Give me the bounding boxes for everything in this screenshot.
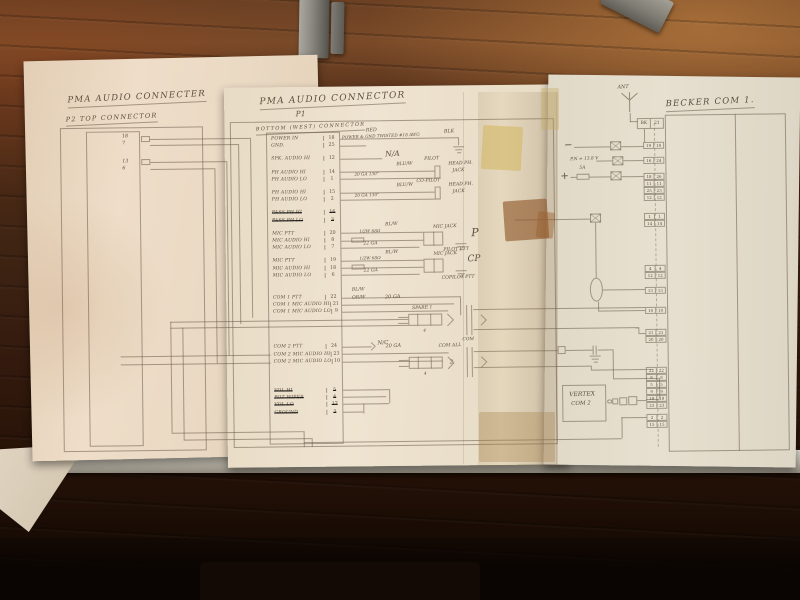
becker-unit-outline: [665, 113, 790, 451]
wire: [389, 389, 390, 403]
ground-icon: [590, 356, 601, 363]
pencil-schematic: PMA AUDIO CONNECTER P2 TOP CONNECTOR 187…: [0, 0, 800, 600]
pin-b: 12: [654, 195, 664, 200]
pin-pair: 1624: [643, 157, 664, 164]
pin-b: 26: [653, 174, 663, 179]
pin-b: 13: [655, 288, 665, 293]
pin-pair: 1515: [646, 421, 667, 428]
vertex-model: COM 2: [571, 401, 591, 407]
p1-title: PMA AUDIO CONNECTOR: [259, 91, 406, 110]
pin-pair: 2020: [645, 336, 666, 343]
inline-connector-icon: [610, 171, 621, 180]
pin-a: 10: [646, 308, 655, 313]
pin-b: 24: [653, 158, 663, 163]
wire: [637, 400, 646, 401]
tape-top-piece: [541, 88, 559, 130]
plug2-number: 2: [450, 360, 454, 366]
mic2-color: BL/W: [385, 251, 398, 256]
wire: [644, 129, 645, 142]
wire: [598, 310, 645, 312]
wire: [595, 223, 597, 278]
com1-tag: COM: [462, 338, 474, 343]
pin-a: 14: [645, 221, 654, 226]
p2-pin: 6: [122, 166, 128, 173]
pin-a: 4: [646, 266, 655, 271]
wire: [591, 369, 653, 371]
supply-wire: [622, 176, 644, 177]
ant-label: ANT: [617, 85, 629, 90]
trs-plug-seg: [612, 398, 618, 404]
pin-pair: 1313: [645, 287, 666, 294]
p2-pin: 7: [122, 141, 128, 148]
wire: [621, 417, 646, 418]
inline-connector-icon: [610, 141, 621, 150]
pin-a: 13: [646, 288, 655, 293]
ph1-position: PILOT: [424, 157, 439, 162]
com1-jack-label: SPARE 1: [412, 306, 432, 311]
mic1-gauge: 22 GA: [363, 242, 377, 247]
plug2-sleeve-wire: [399, 366, 409, 367]
wire: [603, 289, 645, 291]
mic2-resistor: 1/2W 68Ω: [359, 256, 380, 261]
plug1-sleeve-wire: [398, 323, 408, 324]
pin-a: 18: [644, 174, 653, 179]
mic2-dest: MIC JACK: [433, 252, 457, 257]
becker-title: BECKER COM 1.: [665, 96, 755, 112]
minus-terminal: −: [564, 141, 573, 151]
plug1-pin-count: 4: [423, 329, 426, 333]
pin-b: 23: [654, 188, 664, 193]
becker-pin-pairs: 1919 1624 1826 1111 2523 1212 11 1414 44…: [643, 142, 667, 428]
pin-b: 21: [655, 330, 665, 335]
pin-pair: 1212: [645, 272, 666, 279]
pin-b: 5: [656, 382, 666, 387]
wire: [363, 403, 364, 413]
pin-b: 23: [656, 403, 666, 408]
pin-b: 19: [653, 143, 663, 148]
pin-b: 12: [655, 273, 665, 278]
supply-wire: [621, 146, 643, 147]
com2-jack-label: COM ALL: [438, 344, 461, 349]
pin-b: 10: [655, 308, 665, 313]
ph2-dest-2: JACK: [453, 190, 465, 195]
com1-gauge: 20 GA: [385, 295, 401, 301]
gnd-drop: [458, 137, 459, 145]
inline-connector-icon: [612, 156, 623, 165]
pin-a: 25: [645, 188, 654, 193]
brown-tape-piece-small: [536, 211, 556, 239]
ground-icon: [453, 146, 464, 153]
p2-title: PMA AUDIO CONNECTER: [67, 90, 206, 108]
pin-b: 1: [654, 214, 664, 219]
pin-pair: 1212: [644, 194, 665, 201]
pin-a: 22: [647, 368, 656, 373]
trs-plug-seg: [619, 397, 627, 405]
phone-plug-icon-2: [409, 356, 443, 368]
tape-stain: [479, 412, 555, 462]
com2-gauge: 20 GA: [385, 344, 401, 350]
trs-plug-seg: [628, 396, 637, 405]
com1-color-1: BL/W: [352, 288, 365, 293]
supply-wire: [590, 176, 611, 177]
pin-a: 19: [644, 143, 653, 148]
plus-terminal: +: [560, 172, 569, 182]
p1-name: P1: [296, 110, 306, 118]
wire: [638, 333, 645, 334]
headphone-jack-icon-2: [435, 186, 441, 199]
headphone-jack-icon-1: [434, 165, 440, 178]
filter-choke-icon: [590, 278, 603, 302]
wire: [598, 349, 613, 350]
plug2-pin-count: 4: [424, 372, 427, 376]
wire: [613, 349, 614, 378]
phone-plug-icon-1: [408, 313, 442, 325]
pin-pair: 1414: [644, 220, 665, 227]
p2-subtitle: P2 TOP CONNECTOR: [66, 112, 158, 126]
ground-icon: [455, 243, 466, 250]
pin-b: 2: [656, 415, 666, 420]
antenna-icon: [618, 92, 640, 114]
pin-a: 16: [644, 158, 653, 163]
ph1-dest-1: HEAD PH.: [448, 162, 473, 168]
plug2-sleeve-wire: [399, 360, 409, 361]
coax-cell-a: BK: [638, 119, 650, 128]
shield-symbol-2: [141, 159, 150, 165]
shield-symbol-1: [141, 136, 150, 142]
pin-a: 23: [647, 403, 656, 408]
pin-b: 9: [656, 389, 666, 394]
pin-a: 15: [648, 422, 657, 427]
supply-wire: [623, 160, 643, 161]
pin-a: 5: [647, 382, 656, 387]
vertex-name: VERTEX: [569, 391, 595, 398]
supply-wire: [596, 160, 612, 161]
ph2-color: BLU/W: [397, 184, 413, 189]
pin-a: 12: [645, 195, 654, 200]
pin-a: 2: [647, 415, 656, 420]
pin-pair: 2323: [646, 402, 667, 409]
wire: [646, 399, 659, 400]
yellow-tape-piece: [481, 125, 523, 171]
pin-a: 12: [646, 273, 655, 278]
pin-a: 21: [646, 330, 655, 335]
capacitor-bar: [593, 346, 594, 355]
ph1-color: BLU/W: [396, 163, 412, 168]
wire: [621, 417, 622, 438]
pin-pair: 1919: [643, 142, 664, 149]
p2-connector-box: [86, 131, 144, 447]
ph1-dest-2: JACK: [452, 169, 464, 174]
switch-box-icon: [558, 346, 566, 354]
ph2-dest-1: HEAD PH.: [449, 183, 474, 189]
pin-b: 22: [656, 368, 666, 373]
fuse-rating: 5A: [579, 167, 585, 172]
wire: [226, 161, 229, 355]
mic1-resistor: 1/2W 68Ω: [359, 229, 380, 234]
mic-jack-icon-2: [423, 258, 443, 272]
mic-jack-icon-1: [423, 231, 443, 245]
plug1-sleeve-wire: [398, 317, 408, 318]
supply-voltage: P.N = 13.8 V: [570, 157, 598, 162]
pin-a: 11: [645, 181, 654, 186]
supply-wire: [574, 146, 610, 147]
pin-a: 9: [647, 389, 656, 394]
pin-a: 1: [645, 214, 654, 219]
na-label: N/A: [385, 150, 400, 158]
wire: [598, 302, 599, 311]
capacitor-bar: [596, 346, 597, 355]
ground-icon: [456, 270, 467, 277]
pin-b: 20: [655, 337, 665, 342]
pin-pair: 1010: [645, 307, 666, 314]
mic1-dest: MIC JACK: [433, 225, 457, 230]
inline-connector-icon: [590, 214, 601, 223]
wire: [214, 168, 217, 363]
wire: [566, 350, 593, 351]
pin-a: 20: [646, 337, 655, 342]
photo-of-hand-drawn-wiring-diagram: PMA AUDIO CONNECTER P2 TOP CONNECTOR 187…: [0, 0, 800, 600]
mic2-gauge: 22 GA: [364, 269, 378, 274]
wire: [460, 296, 461, 315]
pin-b: 14: [654, 221, 664, 226]
wire-color-blk: BLK: [444, 130, 454, 135]
p2-pin-list: 187136: [122, 134, 129, 173]
coax-cell-b: 21: [650, 119, 663, 128]
pin-b: 15: [657, 422, 667, 427]
pin-b: 4: [655, 266, 665, 271]
pin-b: 11: [654, 181, 664, 186]
mic1-color: BL/W: [385, 223, 398, 228]
fuse-icon: [576, 174, 589, 180]
coax-connector: BK 21: [637, 118, 664, 129]
com1-color-2: OR/W: [352, 296, 366, 301]
ph2-position: CO-PILOT: [416, 179, 440, 185]
supply-wire: [571, 177, 577, 178]
